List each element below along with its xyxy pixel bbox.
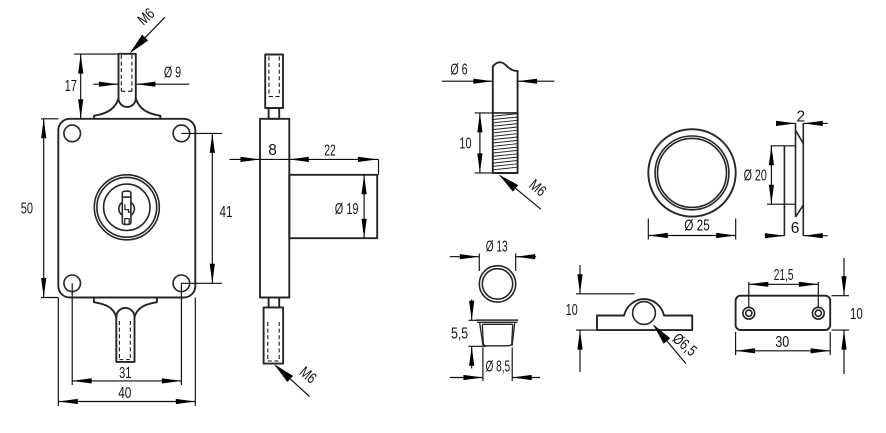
svg-text:5,5: 5,5	[451, 326, 468, 343]
svg-text:22: 22	[324, 143, 336, 160]
svg-text:30: 30	[775, 334, 789, 351]
svg-text:Ø 6: Ø 6	[450, 61, 467, 78]
svg-text:Ø 25: Ø 25	[684, 218, 710, 235]
svg-text:17: 17	[65, 78, 77, 95]
svg-text:6: 6	[791, 220, 800, 237]
svg-text:50: 50	[21, 200, 33, 217]
svg-text:10: 10	[459, 135, 471, 152]
svg-text:10: 10	[566, 302, 578, 319]
svg-text:40: 40	[118, 385, 131, 402]
svg-text:41: 41	[220, 204, 233, 221]
svg-text:Ø 20: Ø 20	[744, 168, 767, 185]
svg-text:Ø 9: Ø 9	[164, 65, 181, 82]
svg-text:31: 31	[119, 365, 131, 382]
svg-text:8: 8	[268, 142, 277, 159]
svg-text:Ø 13: Ø 13	[486, 238, 508, 255]
svg-text:Ø 19: Ø 19	[335, 201, 359, 218]
svg-text:2: 2	[796, 109, 805, 126]
svg-text:Ø 8,5: Ø 8,5	[485, 359, 510, 376]
svg-text:10: 10	[850, 306, 863, 323]
svg-text:21,5: 21,5	[774, 267, 794, 284]
